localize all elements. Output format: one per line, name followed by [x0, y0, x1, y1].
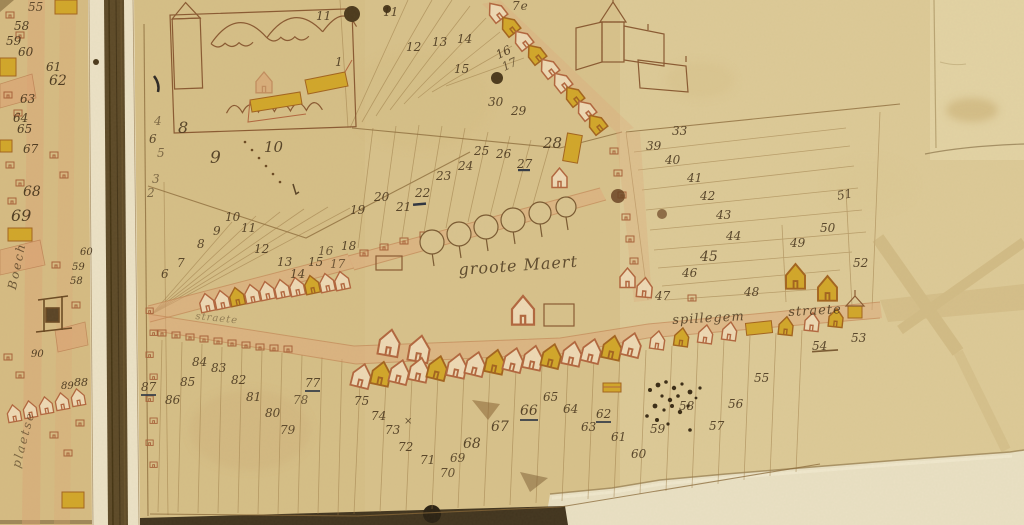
plot-number: 21	[396, 201, 411, 213]
plot-number: ×	[404, 417, 412, 427]
plot-number: 90	[31, 350, 44, 360]
plot-number: 79	[280, 424, 295, 436]
plot-number: 87	[141, 381, 156, 396]
plot-number: 6	[161, 268, 169, 280]
plot-number: 62	[49, 74, 67, 88]
plot-number: 82	[231, 374, 246, 386]
plot-number: 24	[458, 160, 473, 172]
plot-number: 69	[11, 208, 31, 224]
plot-number: 44	[726, 230, 741, 242]
plot-number: 64	[563, 403, 578, 415]
plot-number: 4	[154, 115, 162, 127]
manuscript-map: groote MaertspillegemstraetestraeteBoech…	[0, 0, 1024, 525]
plot-number: 8	[197, 238, 205, 250]
plot-number: 55	[754, 372, 769, 384]
plot-number: 9	[210, 150, 221, 167]
place-label: straete	[195, 312, 239, 326]
plot-number: 50	[820, 222, 835, 234]
plot-number: 1	[335, 56, 343, 68]
plot-number: 78	[293, 394, 308, 406]
plot-number: 6	[149, 133, 157, 145]
plot-number: 17	[330, 258, 345, 270]
plot-number: 26	[496, 148, 511, 160]
plot-number: 59	[72, 263, 85, 273]
plot-number: 13	[432, 36, 447, 48]
place-label: plaetse	[10, 410, 37, 469]
place-label: Boech	[6, 241, 28, 290]
plot-number: 20	[374, 191, 389, 203]
plot-number: 56	[728, 398, 743, 410]
plot-number: 2	[147, 187, 155, 199]
plot-number: 25	[474, 145, 489, 157]
plot-number: 10	[264, 140, 283, 155]
plot-number: 10	[225, 211, 240, 223]
plot-number: 60	[18, 46, 33, 58]
plot-number: 68	[23, 185, 41, 199]
plot-number: 75	[354, 395, 369, 407]
plot-number: 60	[80, 248, 93, 258]
plot-number: 23	[436, 170, 451, 182]
plot-number: 85	[180, 376, 195, 388]
plot-number: 43	[716, 209, 731, 221]
plot-number: 41	[687, 172, 702, 184]
plot-number: 62	[596, 408, 611, 423]
plot-number: 60	[631, 448, 646, 460]
plot-number: 58	[14, 20, 29, 32]
place-label: 7e	[512, 0, 529, 12]
plot-number: 14	[457, 33, 472, 45]
plot-number: 73	[385, 424, 400, 436]
plot-number: 17	[500, 56, 519, 73]
plot-number: 45	[700, 250, 718, 264]
place-label: straete	[788, 303, 842, 319]
plot-number: 68	[463, 437, 481, 451]
plot-number: 74	[371, 410, 386, 422]
plot-number: 49	[790, 237, 805, 249]
plot-number: 19	[350, 204, 365, 216]
place-label: groote Maert	[458, 254, 578, 278]
plot-number: 65	[17, 123, 32, 135]
plot-number: 57	[709, 420, 724, 432]
plot-number: 12	[406, 41, 421, 53]
plot-number: 72	[398, 441, 413, 453]
plot-number: 29	[511, 105, 526, 117]
plot-number: 54	[812, 340, 827, 352]
plot-number: 9	[213, 225, 221, 237]
plot-number: 83	[211, 362, 226, 374]
plot-number: 55	[28, 1, 43, 13]
plot-number: 77	[305, 377, 320, 392]
plot-number: 80	[265, 407, 280, 419]
plot-number: 61	[611, 431, 626, 443]
plot-number: 47	[655, 290, 670, 302]
plot-number: 67	[23, 143, 38, 155]
plot-number: 7	[177, 257, 185, 269]
plot-number: 11	[383, 6, 398, 18]
plot-number: 63	[20, 93, 35, 105]
plot-number: 39	[646, 140, 661, 152]
plot-number: 11	[241, 222, 256, 234]
plot-number: 27	[517, 158, 532, 170]
plot-number: 15	[454, 63, 469, 75]
plot-number: 48	[744, 286, 759, 298]
plot-number: 66	[520, 404, 538, 421]
plot-number: 61	[46, 61, 61, 73]
plot-number: 11	[316, 10, 331, 22]
plot-number: 89	[61, 382, 74, 392]
plot-number: 88	[74, 377, 88, 388]
plot-number: 30	[488, 96, 503, 108]
plot-number: 46	[682, 267, 697, 279]
plot-number: 22	[415, 187, 430, 199]
plot-number: 71	[420, 454, 435, 466]
plot-number: 3	[152, 173, 160, 185]
plot-number: 59	[650, 423, 665, 435]
plot-number: 86	[165, 394, 180, 406]
plot-number: 63	[581, 421, 596, 433]
plot-number: 84	[192, 356, 207, 368]
plot-number: 33	[672, 125, 687, 137]
plot-number: 70	[440, 467, 455, 479]
plot-number: 16	[318, 245, 333, 257]
plot-number: 58	[70, 277, 83, 287]
plot-number: 53	[851, 332, 866, 344]
labels-layer: groote MaertspillegemstraetestraeteBoech…	[0, 0, 1024, 525]
place-label: spillegem	[672, 310, 745, 327]
plot-number: 81	[246, 391, 261, 403]
plot-number: 28	[543, 136, 562, 151]
plot-number: 65	[543, 391, 558, 403]
plot-number: 51	[836, 187, 853, 201]
plot-number: 52	[853, 257, 868, 269]
plot-number: 18	[341, 240, 356, 252]
plot-number: 8	[178, 120, 188, 136]
plot-number: 14	[290, 268, 305, 280]
plot-number: 42	[700, 190, 715, 202]
plot-number: 40	[665, 154, 680, 166]
plot-number: 5	[157, 147, 165, 159]
plot-number: 58	[679, 400, 694, 412]
plot-number: 69	[450, 452, 465, 464]
plot-number: 12	[254, 243, 269, 255]
plot-number: 67	[491, 420, 509, 434]
